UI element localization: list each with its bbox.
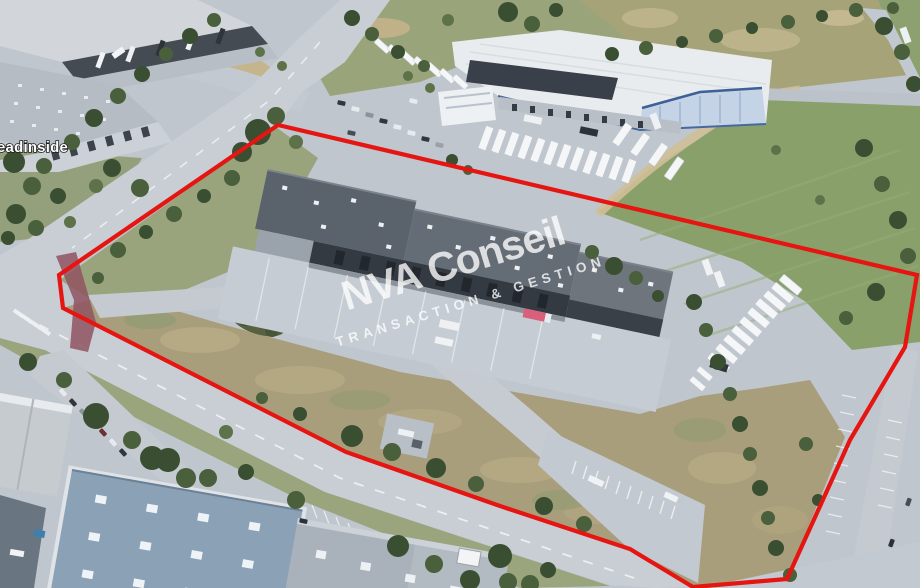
aerial-photo-canvas: NVA Conseil TRANSACTION & GESTION eadins… (0, 0, 920, 588)
corner-label: eadinside (0, 139, 68, 156)
aerial-photo: NVA Conseil TRANSACTION & GESTION eadins… (0, 0, 920, 588)
gatehouse-hut (457, 548, 481, 567)
